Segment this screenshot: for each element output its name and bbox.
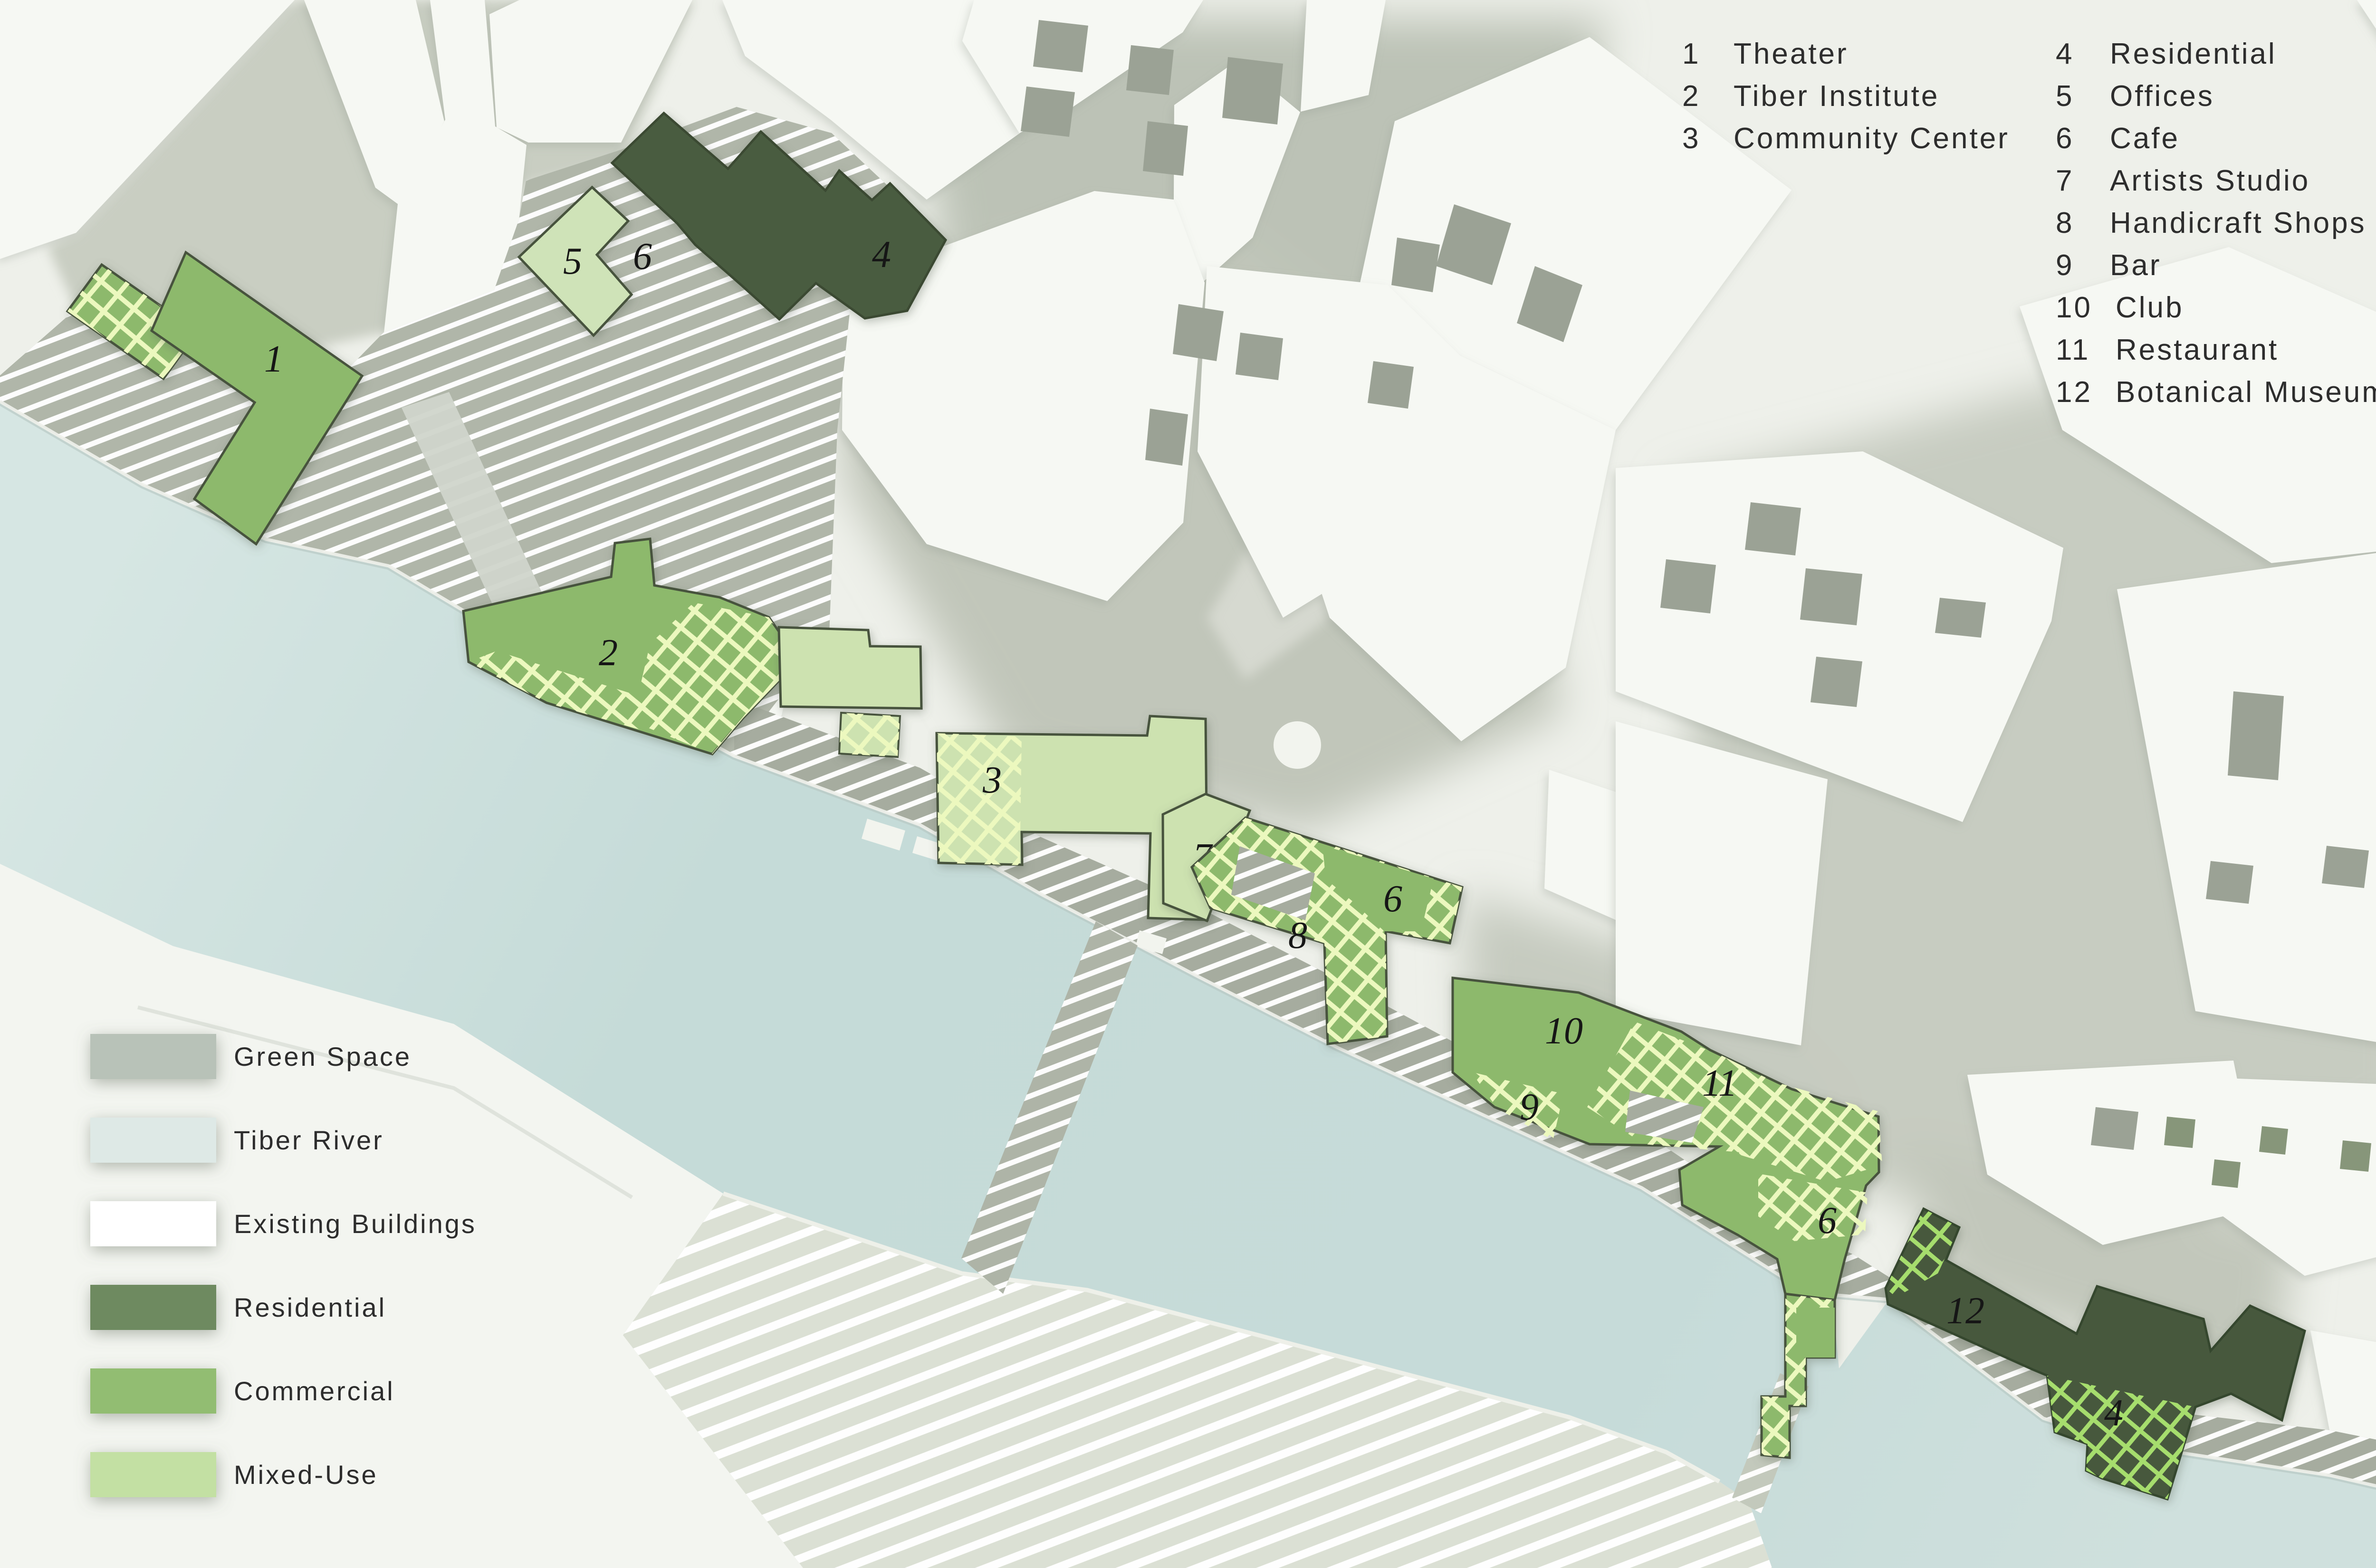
svg-text:Artists Studio: Artists Studio <box>2110 164 2310 197</box>
svg-text:4: 4 <box>872 234 891 276</box>
svg-text:2: 2 <box>599 632 618 674</box>
svg-text:9: 9 <box>1520 1086 1539 1128</box>
svg-text:10: 10 <box>1545 1010 1583 1052</box>
svg-text:Botanical Museum: Botanical Museum <box>2116 376 2376 409</box>
svg-text:3: 3 <box>982 759 1002 801</box>
svg-text:4: 4 <box>2104 1392 2123 1434</box>
svg-text:Handicraft Shops: Handicraft Shops <box>2110 207 2366 239</box>
svg-text:4: 4 <box>2056 38 2074 70</box>
svg-text:Cafe: Cafe <box>2110 122 2180 155</box>
svg-text:Bar: Bar <box>2110 249 2161 282</box>
svg-text:Tiber River: Tiber River <box>234 1125 384 1155</box>
svg-text:8: 8 <box>1288 915 1307 956</box>
svg-text:Theater: Theater <box>1734 38 1849 70</box>
svg-text:6: 6 <box>2056 122 2074 155</box>
svg-text:6: 6 <box>633 236 652 277</box>
svg-text:11: 11 <box>1702 1062 1737 1104</box>
svg-text:Residential: Residential <box>234 1292 386 1322</box>
svg-text:2: 2 <box>1682 80 1700 113</box>
svg-text:Existing Buildings: Existing Buildings <box>234 1209 477 1239</box>
svg-text:5: 5 <box>563 240 582 282</box>
svg-text:Tiber Institute: Tiber Institute <box>1734 80 1939 113</box>
svg-text:6: 6 <box>1818 1200 1837 1242</box>
svg-text:7: 7 <box>2056 164 2074 197</box>
svg-text:9: 9 <box>2056 249 2074 282</box>
svg-text:Community Center: Community Center <box>1734 122 2010 155</box>
svg-text:6: 6 <box>1383 878 1402 920</box>
svg-text:1: 1 <box>264 338 283 380</box>
svg-text:Offices: Offices <box>2110 80 2214 113</box>
svg-text:1: 1 <box>1682 38 1700 70</box>
svg-text:10: 10 <box>2056 291 2092 324</box>
svg-text:11: 11 <box>2056 334 2090 366</box>
svg-text:Mixed-Use: Mixed-Use <box>234 1460 378 1490</box>
svg-text:8: 8 <box>2056 207 2074 239</box>
svg-text:Club: Club <box>2116 291 2184 324</box>
svg-text:Green Space: Green Space <box>234 1042 412 1071</box>
svg-text:Restaurant: Restaurant <box>2116 334 2279 366</box>
svg-text:12: 12 <box>1946 1290 1984 1332</box>
svg-text:Residential: Residential <box>2110 38 2277 70</box>
svg-text:12: 12 <box>2056 376 2092 409</box>
svg-text:Commercial: Commercial <box>234 1376 395 1406</box>
svg-text:5: 5 <box>2056 80 2074 113</box>
svg-text:3: 3 <box>1682 122 1700 155</box>
